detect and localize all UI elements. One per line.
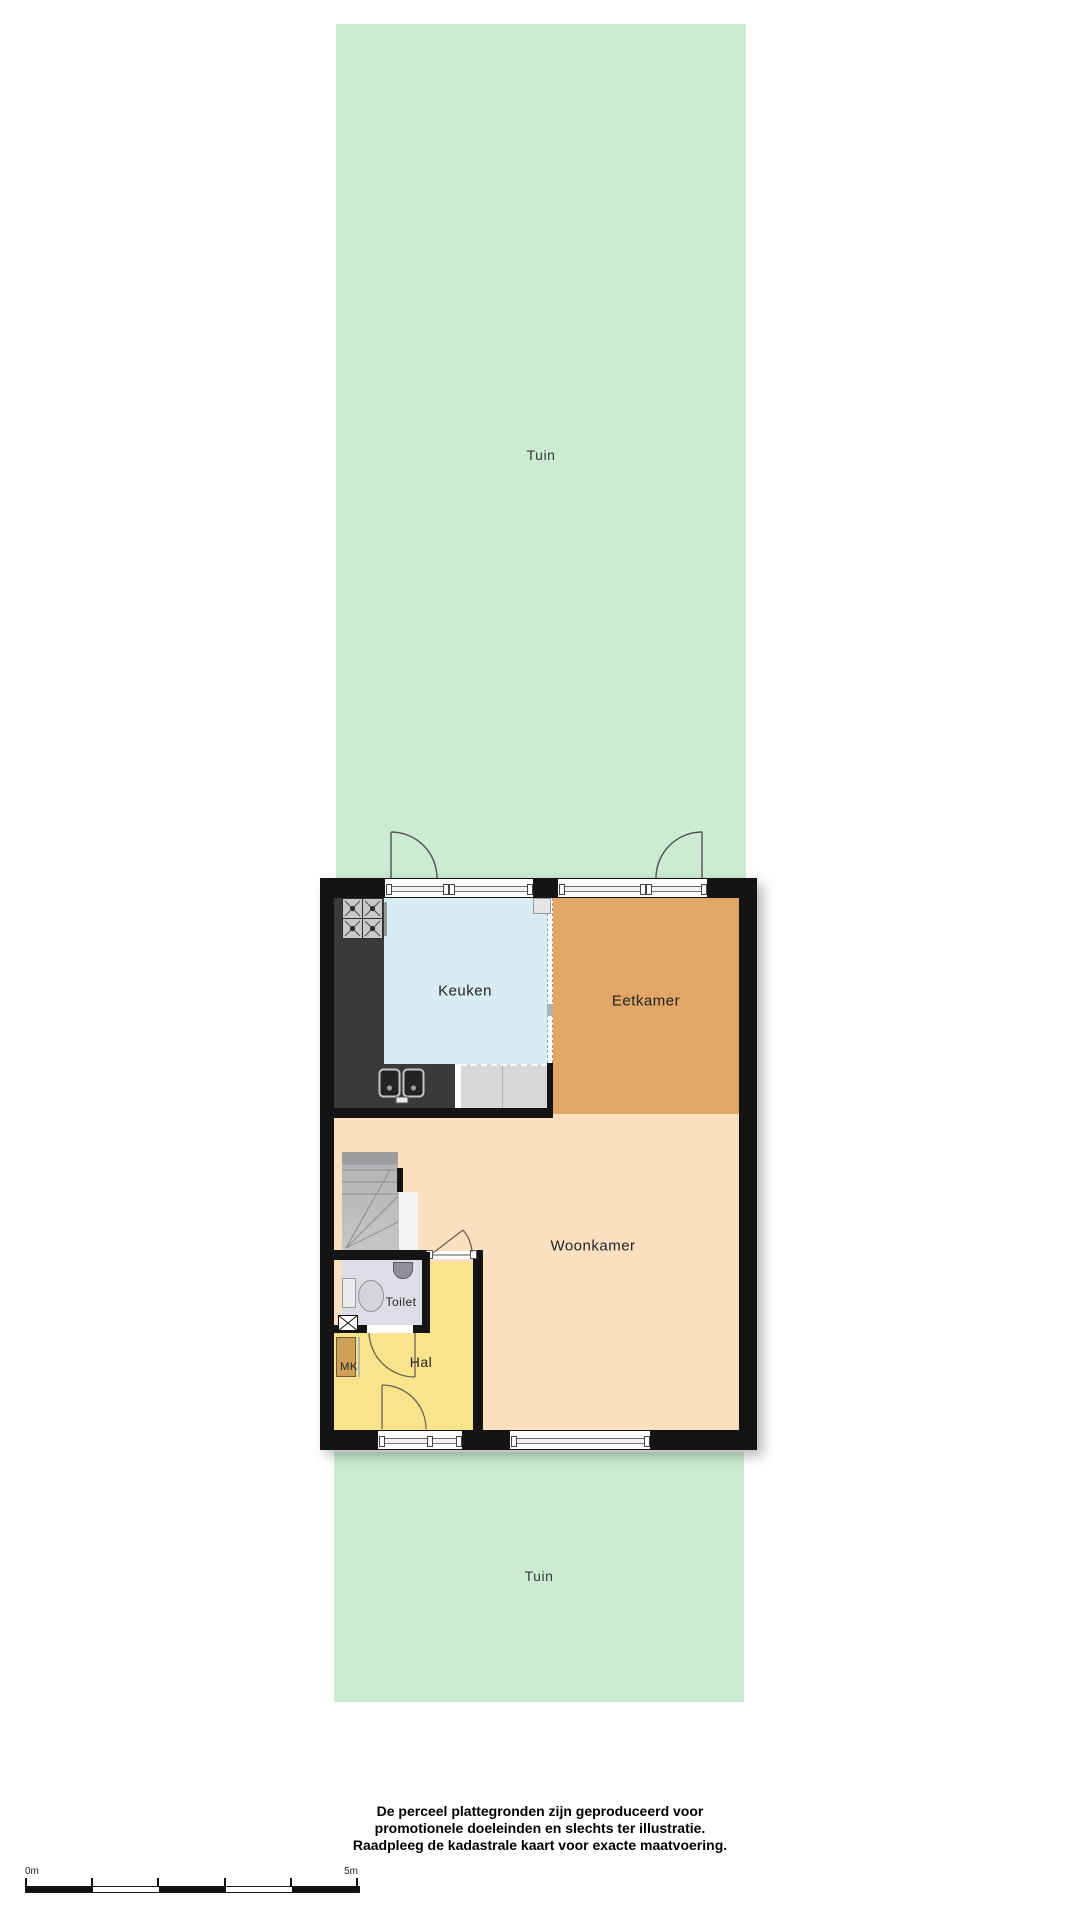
appliance-divider [502,1066,503,1108]
scale-segment [226,1887,293,1892]
window-glass [380,1438,460,1444]
wall-hal-woonkamer [473,1250,483,1430]
wall-right [739,878,757,1450]
toilet-cistern-icon [342,1278,356,1308]
room-woonkamer-right [553,1114,739,1430]
scale-segment [292,1887,359,1892]
window-tick [644,1436,650,1447]
window-tick [559,884,565,895]
disclaimer-line-1: De perceel plattegronden zijn geproducee… [0,1803,1080,1820]
garden-top-label: Tuin [527,447,556,463]
window-woonkamer [510,1431,650,1449]
room-keuken [384,898,547,1064]
window-tick [701,884,707,895]
disclaimer-line-3: Raadpleeg de kadastrale kaart voor exact… [0,1837,1080,1854]
scale-bar-segments [25,1886,360,1893]
kitchen-eetkamer-divider [547,898,553,1063]
window-glass [512,1438,648,1444]
wall-divider-lower [547,1063,553,1118]
toilet-door-opening [367,1325,413,1333]
window-keuken [385,879,533,897]
hal-door-threshold [432,1254,471,1256]
scale-segment [93,1887,160,1892]
meter-cupboard-door [358,1337,360,1377]
room-label-toilet: Toilet [385,1295,416,1309]
vent-shaft-icon [338,1315,358,1331]
floorplan-canvas: Tuin Tuin Keuken Eetkamer Woonkamer Hal … [0,0,1080,1920]
stair-landing [398,1192,418,1250]
kitchen-door-block [533,898,551,914]
garden-bottom-label: Tuin [525,1568,554,1584]
window-tick [449,884,455,895]
wall-toilet-right [422,1252,430,1333]
window-glass [387,886,531,892]
stairs [342,1152,398,1250]
scale-start-label: 0m [25,1866,39,1877]
stove-icon [342,898,383,939]
window-eetkamer [558,879,707,897]
stove-handle [384,902,387,936]
divider-post [547,1004,553,1016]
room-label-mk: MK [340,1361,358,1373]
wall-below-stairs [320,1250,430,1260]
scale-segment [26,1887,93,1892]
window-tick [386,884,392,895]
scale-segment [159,1887,226,1892]
window-tick [511,1436,517,1447]
wall-kitchen-bottom [334,1108,553,1118]
front-door-window [378,1431,462,1449]
room-hal-strip [430,1262,473,1430]
window-tick [379,1436,385,1447]
room-label-woonkamer: Woonkamer [550,1238,635,1255]
window-glass [560,886,705,892]
toilet-bowl-icon [358,1280,384,1312]
disclaimer-line-2: promotionele doeleinden en slechts ter i… [0,1820,1080,1837]
scale-bar: 0m 5m [25,1866,358,1896]
room-label-hal: Hal [410,1354,433,1370]
sink-icon [378,1068,426,1106]
window-tick [456,1436,462,1447]
building-outline [320,878,757,1450]
kitchen-appliance [461,1064,547,1108]
window-tick [427,1436,433,1447]
scale-end-label: 5m [344,1866,358,1877]
stair-wall-stub [397,1168,403,1192]
window-tick [646,884,652,895]
wall-left [320,878,334,1450]
hal-door-jamb-right [470,1250,477,1259]
room-label-eetkamer: Eetkamer [612,993,680,1010]
window-tick [527,884,533,895]
room-label-keuken: Keuken [438,983,492,1000]
footer-disclaimer: De perceel plattegronden zijn geproducee… [0,1803,1080,1854]
